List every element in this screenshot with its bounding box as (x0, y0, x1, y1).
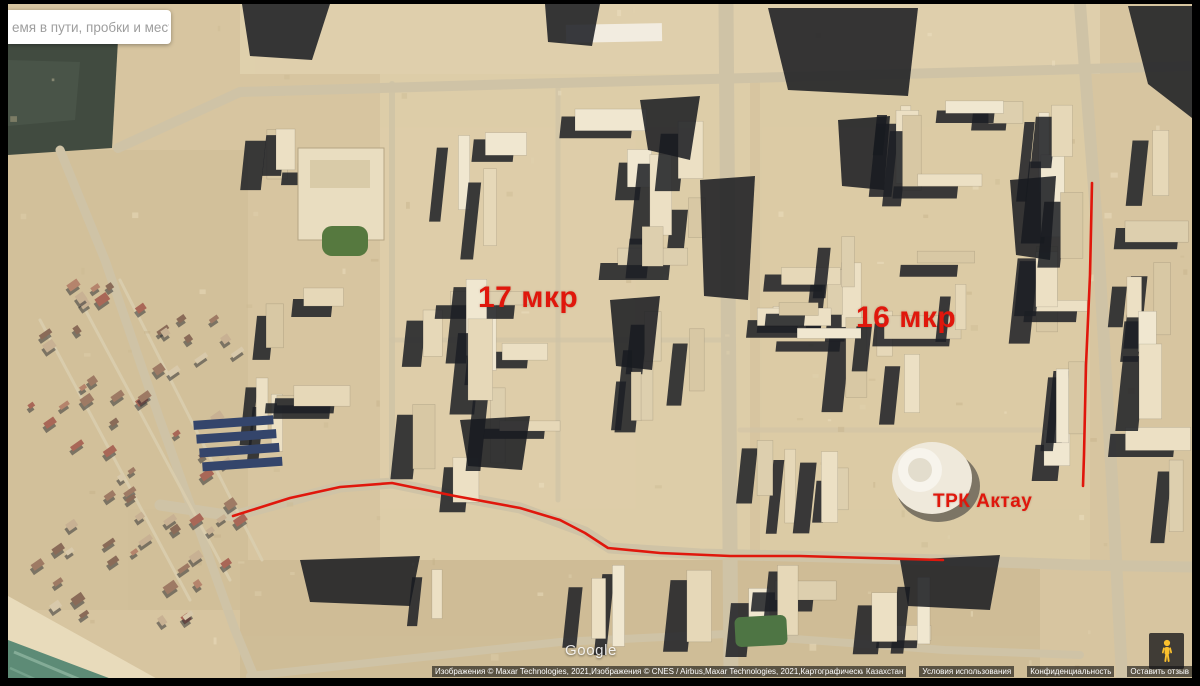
attribution-link-0: Казахстан (863, 666, 907, 677)
shore-rocks (8, 36, 118, 155)
attribution-link-2[interactable]: Конфиденциальность (1027, 666, 1114, 677)
map-canvas[interactable] (0, 0, 1200, 686)
pegman-control[interactable] (1149, 633, 1184, 669)
search-box[interactable] (8, 10, 171, 44)
attribution-imagery: Изображения © Maxar Technologies, 2021,И… (432, 666, 863, 677)
football-field (322, 226, 368, 256)
attribution-bar: Изображения © Maxar Technologies, 2021,И… (432, 666, 1192, 677)
pegman-icon (1160, 639, 1174, 663)
satellite-imagery (0, 0, 1200, 686)
attribution-links: КазахстанУсловия использованияКонфиденци… (863, 666, 1192, 677)
attribution-link-1[interactable]: Условия использования (919, 666, 1014, 677)
google-logo[interactable]: Google (565, 642, 617, 659)
sports-pitch (734, 615, 787, 648)
search-input[interactable] (10, 19, 171, 36)
